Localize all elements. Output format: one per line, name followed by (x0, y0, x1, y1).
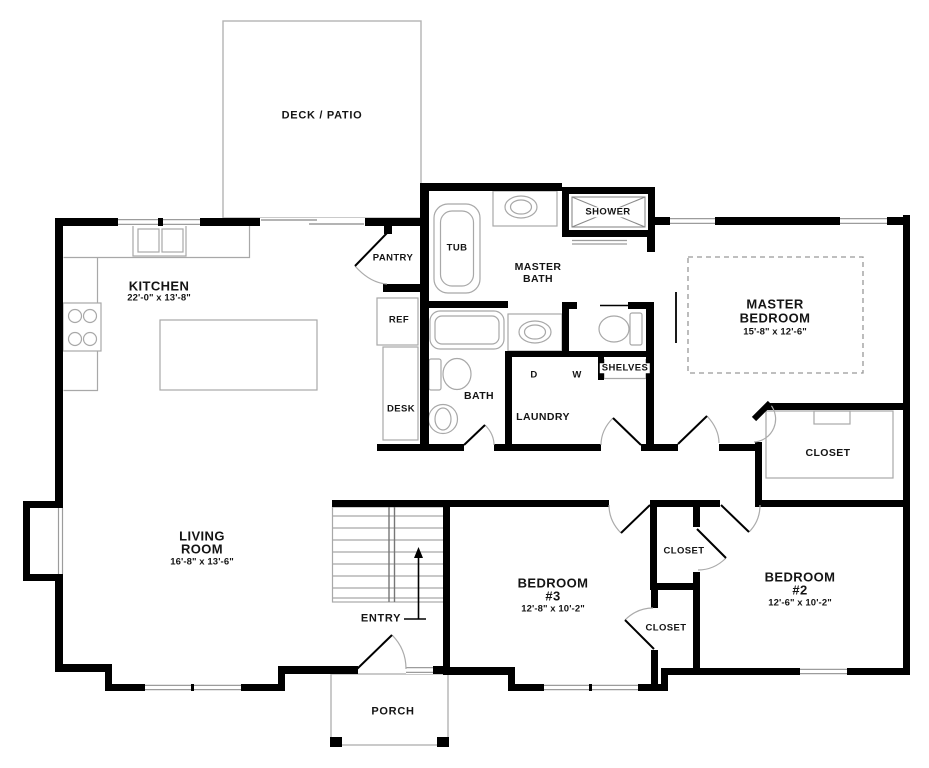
room-dims-living-room: 16'-8" x 13'-6" (170, 557, 234, 567)
floor-plan-drawing (0, 0, 929, 768)
room-dims-kitchen: 22'-0" x 13'-8" (127, 293, 191, 303)
room-label-laundry: LAUNDRY (516, 412, 570, 423)
master-bath-sink-counter (493, 191, 557, 226)
room-label-closet-bottom: CLOSET (644, 623, 689, 633)
room-label-closet-top: CLOSET (662, 546, 707, 556)
room-label-pantry: PANTRY (373, 253, 413, 263)
fixture-label-shelves: SHELVES (600, 363, 650, 373)
room-label-master-bath-line1: MASTER (515, 262, 562, 273)
room-label-master-closet: CLOSET (804, 448, 853, 459)
sliding-door (260, 218, 365, 226)
kitchen-island (160, 320, 317, 390)
room-label-master-bath-line2: BATH (523, 274, 553, 285)
room-label-master-bedroom-line2: BEDROOM (740, 312, 811, 325)
entry-sidelite (406, 666, 433, 674)
room-label-bedroom3-line2: #3 (545, 590, 560, 603)
fixture-label-desk: DESK (385, 404, 417, 414)
room-label-master-bedroom-line1: MASTER (746, 298, 803, 311)
room-label-bedroom2-line2: #2 (792, 584, 807, 597)
walls (23, 183, 910, 747)
fixture-label-dryer: D (530, 370, 537, 380)
fixture-label-washer: W (572, 370, 581, 380)
fixture-label-tub: TUB (445, 243, 470, 253)
room-label-porch: PORCH (371, 707, 414, 718)
fixture-label-ref: REF (387, 315, 411, 325)
bath-sink (429, 405, 458, 434)
room-dims-master-bedroom: 15'-8" x 12'-6" (743, 327, 807, 337)
kitchen-sink (133, 224, 186, 256)
floor-plan: DECK / PATIO KITCHEN 22'-0" x 13'-8" PAN… (0, 0, 929, 768)
master-vanity (508, 314, 562, 351)
stairs-up-arrow-icon (404, 547, 426, 619)
stove (63, 303, 101, 351)
room-label-living-room-line2: ROOM (181, 543, 223, 556)
room-dims-bedroom3: 12'-8" x 10'-2" (521, 604, 585, 614)
bay-window-glass (59, 508, 63, 574)
master-closet-shelving (766, 411, 893, 478)
bath-toilet (429, 359, 471, 391)
fixture-label-shower: SHOWER (583, 207, 632, 217)
desk-box (383, 347, 418, 440)
room-dims-bedroom2: 12'-6" x 10'-2" (768, 598, 832, 608)
room-label-entry: ENTRY (361, 614, 401, 625)
room-label-kitchen: KITCHEN (129, 280, 190, 293)
room-label-deck-patio: DECK / PATIO (282, 111, 363, 122)
bath-tub (430, 311, 504, 349)
room-label-bath: BATH (464, 391, 494, 402)
wc-toilet (599, 313, 642, 345)
